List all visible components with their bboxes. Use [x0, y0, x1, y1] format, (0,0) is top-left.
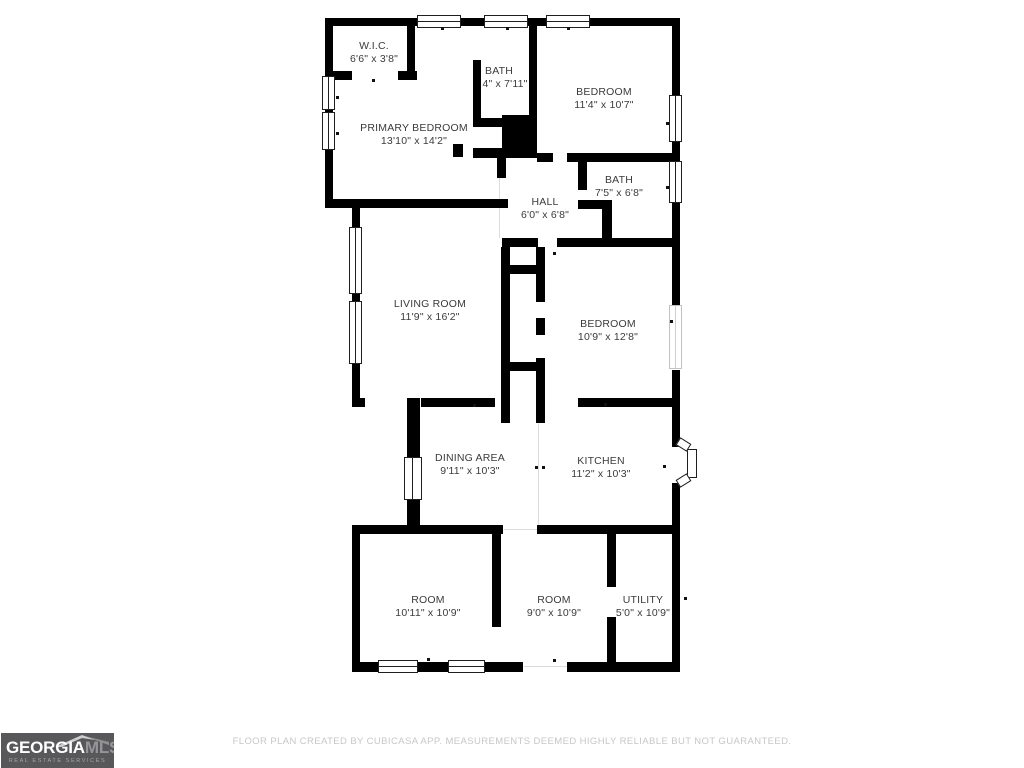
georgia-mls-logo: GEORGIAMLS REAL ESTATE SERVICES — [1, 733, 114, 768]
wall-segment — [473, 118, 505, 127]
window-pane-line — [449, 666, 484, 667]
wall-segment — [398, 71, 417, 80]
window-pane-line — [547, 21, 589, 22]
room-label-bedroom: BEDROOM10'9" x 12'8" — [578, 318, 638, 344]
room-label-dining-area: DINING AREA9'11" x 10'3" — [435, 452, 505, 478]
dimension-tick — [535, 466, 538, 469]
wall-segment — [453, 144, 463, 157]
window-pane-line — [418, 21, 460, 22]
window-symbol — [669, 305, 682, 369]
room-label-room: ROOM10'11" x 10'9" — [395, 594, 460, 620]
wall-segment — [537, 525, 680, 534]
wall-segment — [607, 534, 616, 587]
dimension-tick — [684, 597, 687, 600]
wall-segment — [352, 398, 365, 407]
room-label-bedroom: BEDROOM11'4" x 10'7" — [574, 86, 633, 112]
room-dimensions: 10'11" x 10'9" — [395, 607, 460, 620]
window-pane-line — [355, 228, 356, 293]
room-dimensions: 6'0" x 6'8" — [521, 209, 569, 222]
opening-boundary-line — [524, 666, 567, 667]
window-symbol — [669, 95, 682, 142]
room-label-bath: BATH7'5" x 6'8" — [595, 174, 643, 200]
wall-segment — [672, 483, 680, 672]
window-pane-line — [355, 302, 356, 363]
window-pane-line — [379, 666, 417, 667]
room-name: PRIMARY BEDROOM — [360, 122, 468, 134]
wall-segment — [578, 398, 680, 407]
window-symbol — [404, 457, 422, 500]
room-name: BATH — [605, 174, 633, 186]
room-name: ROOM — [411, 594, 444, 606]
floorplan-canvas: W.I.C.6'6" x 3'8"PRIMARY BEDROOM13'10" x… — [0, 0, 1024, 768]
room-dimensions: 11'9" x 16'2" — [394, 311, 466, 324]
wall-segment — [497, 148, 506, 178]
room-dimensions: 13'10" x 14'2" — [360, 135, 468, 148]
room-label-primary-bedroom: PRIMARY BEDROOM13'10" x 14'2" — [360, 122, 468, 148]
wall-segment — [529, 26, 537, 120]
room-dimensions: 5'0" x 10'9" — [616, 607, 670, 620]
room-name: ROOM — [537, 594, 570, 606]
room-dimensions: 9'11" x 10'3" — [435, 465, 505, 478]
room-dimensions: 10'9" x 12'8" — [578, 331, 638, 344]
dimension-tick — [427, 658, 430, 661]
wall-segment — [473, 60, 481, 127]
wall-segment — [557, 238, 679, 247]
wall-segment — [536, 318, 545, 335]
dimension-tick — [670, 320, 673, 323]
wall-segment — [352, 525, 360, 672]
dimension-tick — [663, 465, 666, 468]
window-symbol — [349, 301, 362, 364]
wall-segment — [567, 662, 680, 672]
opening-boundary-line — [504, 529, 537, 530]
dimension-tick — [336, 132, 339, 135]
logo-brand: GEORGIAMLS — [6, 739, 114, 757]
window-symbol — [448, 660, 485, 673]
wall-segment — [505, 362, 540, 371]
wall-segment — [578, 161, 587, 190]
wall-segment — [502, 238, 538, 247]
room-dimensions: 7'5" x 6'8" — [595, 187, 643, 200]
room-label-hall: HALL6'0" x 6'8" — [521, 196, 569, 222]
room-name: HALL — [531, 196, 558, 208]
dimension-tick — [666, 122, 669, 125]
wall-segment — [672, 370, 680, 447]
wall-segment — [421, 398, 495, 407]
dimension-tick — [542, 466, 545, 469]
dimension-tick — [604, 403, 607, 406]
room-label-kitchen: KITCHEN11'2" x 10'3" — [571, 455, 630, 481]
wall-segment — [505, 265, 540, 274]
window-symbol — [417, 15, 461, 28]
dimension-tick — [473, 404, 476, 407]
window-pane-line — [675, 306, 676, 368]
wall-segment — [672, 142, 680, 163]
window-symbol — [669, 161, 682, 203]
room-name: BEDROOM — [576, 86, 632, 98]
dimension-tick — [506, 27, 509, 30]
room-name: BEDROOM — [580, 318, 636, 330]
dimension-tick — [666, 186, 669, 189]
floorplan-page: W.I.C.6'6" x 3'8"PRIMARY BEDROOM13'10" x… — [0, 0, 1024, 768]
window-symbol — [378, 660, 418, 673]
room-name: KITCHEN — [577, 455, 625, 467]
window-symbol — [322, 112, 335, 150]
room-name: UTILITY — [623, 594, 664, 606]
wall-segment — [536, 247, 545, 302]
room-dimensions: 9'0" x 10'9" — [527, 607, 581, 620]
dimension-tick — [553, 659, 556, 662]
dimension-tick — [567, 27, 570, 30]
window-pane-line — [675, 162, 676, 202]
window-pane-line — [412, 458, 413, 499]
wall-segment — [492, 534, 501, 627]
logo-georgia-text: GEORGIA — [6, 738, 85, 757]
logo-tagline: REAL ESTATE SERVICES — [1, 758, 114, 764]
window-symbol — [322, 76, 335, 110]
room-name: W.I.C. — [359, 40, 389, 52]
room-label-room: ROOM9'0" x 10'9" — [527, 594, 581, 620]
window-symbol — [349, 227, 362, 294]
room-label-utility: UTILITY5'0" x 10'9" — [616, 594, 670, 620]
room-label-w-i-c: W.I.C.6'6" x 3'8" — [350, 40, 398, 66]
wall-segment — [407, 26, 415, 75]
dimension-tick — [372, 79, 375, 82]
window-pane-line — [485, 21, 527, 22]
room-label-bath: BATH4" x 7'11" — [476, 65, 521, 91]
window-pane-line — [675, 96, 676, 141]
window-pane-line — [328, 77, 329, 109]
opening-boundary-line — [538, 407, 539, 525]
dimension-tick — [441, 27, 444, 30]
room-dimensions: 11'4" x 10'7" — [574, 99, 633, 112]
room-dimensions: 6'6" x 3'8" — [350, 53, 398, 66]
wall-segment — [672, 203, 680, 305]
entry-door-leaf — [687, 449, 697, 478]
room-name: BATH — [485, 65, 513, 77]
logo-mls-text: MLS — [85, 738, 114, 757]
wall-segment — [537, 153, 553, 162]
disclaimer-text: FLOOR PLAN CREATED BY CUBICASA APP. MEAS… — [233, 736, 792, 747]
window-pane-line — [328, 113, 329, 149]
room-name: DINING AREA — [435, 452, 505, 464]
wall-segment — [672, 18, 680, 97]
room-dimensions: 4" x 7'11" — [482, 78, 527, 91]
room-name: LIVING ROOM — [394, 298, 466, 310]
wall-segment — [352, 525, 503, 534]
room-label-living-room: LIVING ROOM11'9" x 16'2" — [394, 298, 466, 324]
room-dimensions: 11'2" x 10'3" — [571, 468, 630, 481]
dimension-tick — [336, 96, 339, 99]
dimension-tick — [553, 252, 556, 255]
wall-segment — [607, 617, 616, 662]
